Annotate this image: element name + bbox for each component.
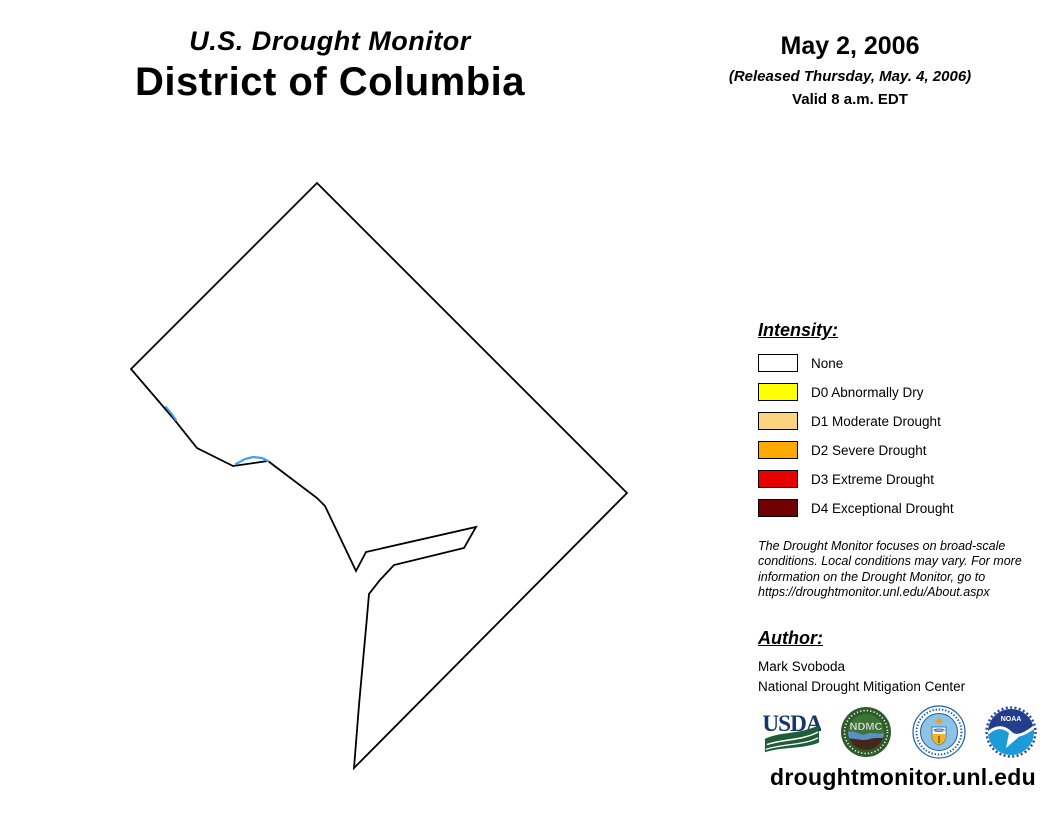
- disclaimer-line: conditions. Local conditions may vary. F…: [758, 554, 1048, 569]
- drought-monitor-page: U.S. Drought Monitor District of Columbi…: [0, 0, 1056, 816]
- ndmc-logo-text: NDMC: [850, 721, 883, 733]
- disclaimer-text: The Drought Monitor focuses on broad-sca…: [758, 539, 1048, 600]
- legend: Intensity: None D0 Abnormally Dry D1 Mod…: [758, 320, 954, 528]
- legend-item-d2: D2 Severe Drought: [758, 441, 954, 459]
- noaa-logo-icon: NOAA: [985, 706, 1037, 758]
- legend-item-d1: D1 Moderate Drought: [758, 412, 954, 430]
- disclaimer-line: https://droughtmonitor.unl.edu/About.asp…: [758, 585, 1048, 600]
- legend-swatch-d1: [758, 412, 798, 430]
- legend-swatch-d4: [758, 499, 798, 517]
- commerce-ship: [934, 729, 944, 732]
- ndmc-logo-icon: NDMC: [840, 706, 892, 758]
- legend-label: D4 Exceptional Drought: [811, 501, 954, 516]
- author-heading: Author:: [758, 628, 965, 649]
- author-name: Mark Svoboda: [758, 659, 965, 674]
- usda-logo-icon: USDA: [763, 709, 821, 755]
- commerce-column: [938, 736, 940, 743]
- noaa-logo-text: NOAA: [1001, 716, 1022, 723]
- site-url: droughtmonitor.unl.edu: [758, 764, 1048, 791]
- legend-label: D2 Severe Drought: [811, 443, 927, 458]
- agency-logos: USDA NDMC: [763, 705, 1037, 759]
- legend-label: D0 Abnormally Dry: [811, 385, 924, 400]
- disclaimer-line: The Drought Monitor focuses on broad-sca…: [758, 539, 1048, 554]
- legend-label: None: [811, 356, 843, 371]
- legend-item-d0: D0 Abnormally Dry: [758, 383, 954, 401]
- author-block: Author: Mark Svoboda National Drought Mi…: [758, 628, 965, 694]
- disclaimer-line: information on the Drought Monitor, go t…: [758, 570, 1048, 585]
- legend-heading: Intensity:: [758, 320, 954, 341]
- legend-label: D1 Moderate Drought: [811, 414, 941, 429]
- legend-item-d3: D3 Extreme Drought: [758, 470, 954, 488]
- author-organization: National Drought Mitigation Center: [758, 679, 965, 694]
- legend-swatch-none: [758, 354, 798, 372]
- legend-item-none: None: [758, 354, 954, 372]
- legend-swatch-d2: [758, 441, 798, 459]
- commerce-seal-icon: [912, 705, 966, 759]
- legend-label: D3 Extreme Drought: [811, 472, 934, 487]
- legend-item-d4: D4 Exceptional Drought: [758, 499, 954, 517]
- legend-swatch-d0: [758, 383, 798, 401]
- legend-swatch-d3: [758, 470, 798, 488]
- dc-boundary: [131, 183, 627, 768]
